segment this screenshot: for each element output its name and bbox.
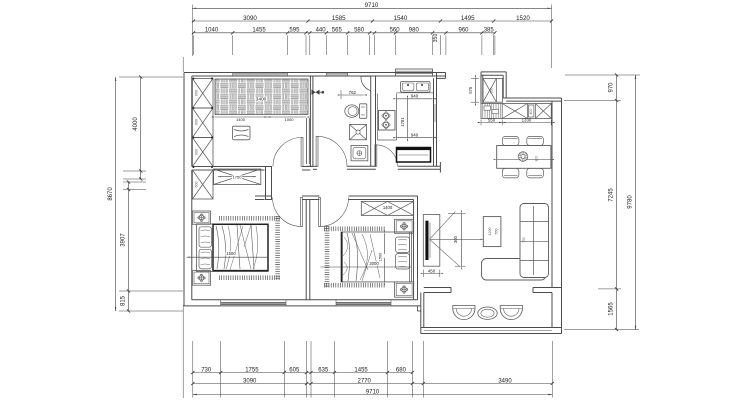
svg-text:3090: 3090 [243,378,257,384]
svg-text:960: 960 [458,28,469,34]
svg-text:940: 940 [411,133,419,138]
svg-text:1520: 1520 [516,15,530,22]
svg-text:1755: 1755 [245,367,259,373]
svg-text:1540: 1540 [394,15,408,22]
svg-text:3907: 3907 [121,233,127,247]
svg-text:550: 550 [488,117,496,122]
svg-text:9710: 9710 [365,2,379,9]
svg-text:3090: 3090 [243,15,257,22]
svg-text:8670: 8670 [108,187,114,201]
svg-text:1585: 1585 [332,15,346,22]
svg-text:1000: 1000 [285,117,295,122]
svg-text:9780: 9780 [628,195,634,209]
svg-text:1455: 1455 [354,367,368,373]
svg-text:3400: 3400 [256,97,267,103]
svg-text:730: 730 [201,367,212,373]
svg-text:1565: 1565 [609,302,615,316]
svg-text:970: 970 [609,82,615,93]
svg-text:800: 800 [535,156,539,162]
svg-text:385: 385 [484,28,495,34]
svg-text:595: 595 [289,28,300,34]
svg-text:440: 440 [316,28,327,34]
svg-text:560: 560 [390,28,401,34]
svg-text:350: 350 [490,88,494,94]
svg-text:565: 565 [332,28,343,34]
svg-text:680: 680 [396,367,407,373]
svg-text:575: 575 [468,86,473,94]
svg-text:1400: 1400 [383,205,393,210]
svg-text:9710: 9710 [366,389,380,395]
svg-text:1330: 1330 [522,117,532,122]
svg-text:1040: 1040 [205,28,219,34]
svg-text:940: 940 [411,94,419,99]
svg-text:4000: 4000 [133,117,139,131]
svg-text:600: 600 [195,149,199,155]
svg-text:550: 550 [494,229,498,235]
svg-text:300: 300 [453,235,458,243]
svg-text:1781: 1781 [400,117,405,127]
svg-text:7245: 7245 [609,188,615,202]
svg-text:350: 350 [433,34,439,43]
svg-text:600: 600 [529,109,533,115]
svg-text:450: 450 [428,268,436,273]
svg-text:2770: 2770 [358,378,372,384]
svg-text:815: 815 [121,295,127,306]
svg-text:1500: 1500 [379,253,383,261]
svg-text:1400: 1400 [236,117,246,122]
svg-text:635: 635 [318,367,329,373]
svg-text:1455: 1455 [252,28,266,34]
svg-text:762: 762 [349,90,357,95]
svg-text:3490: 3490 [498,378,512,384]
svg-text:1500: 1500 [226,251,236,256]
svg-text:580: 580 [354,28,365,34]
svg-text:600: 600 [195,90,199,96]
svg-text:1200: 1200 [488,228,492,236]
svg-text:600: 600 [195,182,199,188]
svg-text:1750: 1750 [233,175,243,180]
svg-text:750: 750 [522,237,526,243]
svg-text:1495: 1495 [461,15,475,22]
svg-text:605: 605 [289,367,300,373]
svg-text:980: 980 [409,28,420,34]
svg-text:600: 600 [195,119,199,125]
